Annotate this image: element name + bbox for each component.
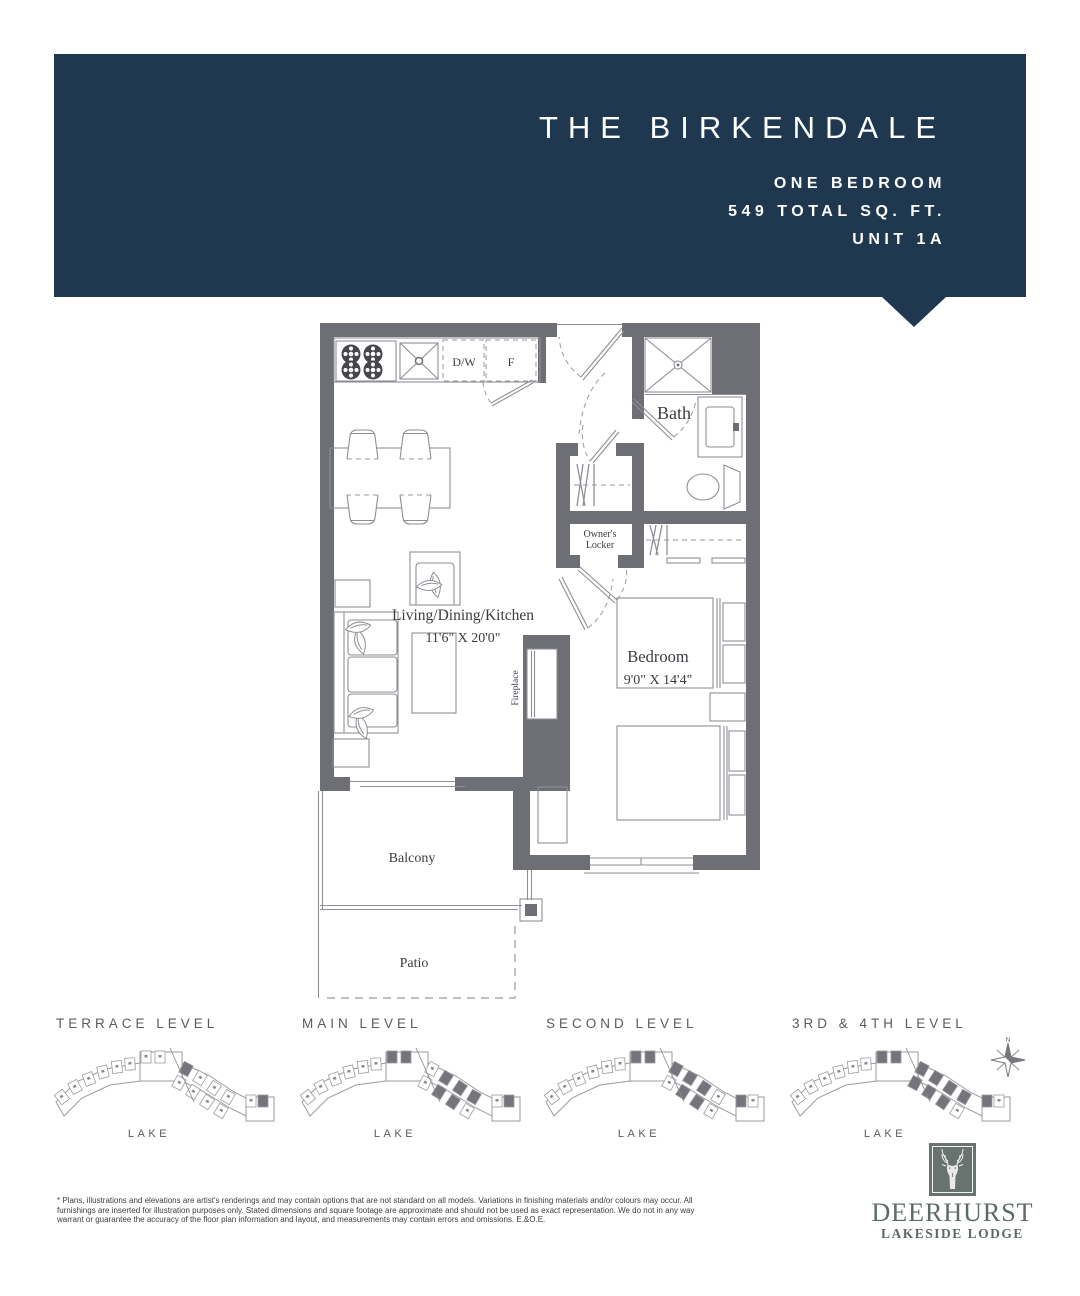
level-title: SECOND LEVEL: [546, 1016, 778, 1031]
level-block-main: MAIN LEVEL LAKE: [294, 1016, 534, 1166]
balcony: Balcony: [319, 782, 543, 999]
unit-number: UNIT 1A: [728, 226, 946, 254]
title-banner: THE BIRKENDALE ONE BEDROOM 549 TOTAL SQ.…: [54, 54, 1026, 297]
level-block-terrace: TERRACE LEVEL LAKE: [48, 1016, 283, 1166]
living-label: Living/Dining/Kitchen: [392, 607, 534, 624]
balcony-label: Balcony: [389, 851, 436, 866]
doors: [483, 325, 696, 631]
patio-label: Patio: [400, 956, 429, 971]
owners-locker-label-1: Owner's: [584, 529, 617, 540]
side-table: [335, 580, 370, 607]
fireplace-label: Fireplace: [511, 670, 521, 705]
lake-label: LAKE: [104, 1128, 194, 1140]
sink: [400, 343, 438, 379]
level-title: 3RD & 4TH LEVEL: [792, 1016, 1032, 1031]
living-dims: 11'6" X 20'0": [425, 631, 500, 646]
toilet: [687, 465, 740, 509]
main-level-keyplan: [294, 1040, 526, 1126]
bedroom-label: Bedroom: [627, 647, 689, 666]
bath-label: Bath: [657, 403, 691, 423]
vanity: [698, 397, 742, 457]
unit-area: 549 TOTAL SQ. FT.: [728, 198, 946, 226]
lake-label: LAKE: [350, 1128, 440, 1140]
page-title: THE BIRKENDALE: [539, 110, 946, 146]
fireplace: Fireplace: [511, 649, 557, 719]
living-dining: Living/Dining/Kitchen 11'6" X 20'0": [330, 430, 534, 767]
compass-icon: N: [988, 1034, 1028, 1078]
logo-tagline: LAKESIDE LODGE: [870, 1226, 1035, 1242]
walls: [320, 323, 760, 870]
bedroom-window: [584, 858, 699, 873]
armchair: [410, 552, 460, 605]
kitchen: D/W F: [334, 338, 540, 382]
unit-type: ONE BEDROOM: [728, 170, 946, 198]
lake-label: LAKE: [594, 1128, 684, 1140]
sofa: [334, 612, 398, 739]
fridge-label: F: [508, 355, 515, 369]
deerhurst-logo-icon: [929, 1143, 976, 1196]
disclaimer-text: * Plans, illustrations and elevations ar…: [57, 1196, 737, 1225]
lake-label: LAKE: [840, 1128, 930, 1140]
unit-summary: ONE BEDROOM 549 TOTAL SQ. FT. UNIT 1A: [728, 170, 946, 254]
level-block-second: SECOND LEVEL LAKE: [538, 1016, 778, 1166]
level-title: MAIN LEVEL: [302, 1016, 534, 1031]
bedroom-bench: [538, 787, 567, 843]
logo-brand-name: DEERHURST: [870, 1198, 1035, 1228]
dishwasher-label: D/W: [452, 355, 476, 369]
bedroom-dims: 9'0" X 14'4": [624, 673, 693, 688]
owners-locker-label-2: Locker: [586, 540, 615, 551]
terrace-level-keyplan: [48, 1040, 280, 1126]
bed-2: [617, 726, 745, 820]
level-title: TERRACE LEVEL: [56, 1016, 283, 1031]
banner-pointer: [882, 297, 946, 327]
nightstand: [710, 693, 745, 721]
patio: Patio: [322, 926, 515, 998]
end-table: [333, 739, 369, 767]
third-fourth-level-keyplan: [784, 1040, 1016, 1126]
floor-plan: D/W F: [300, 315, 780, 1010]
second-level-keyplan: [538, 1040, 770, 1126]
